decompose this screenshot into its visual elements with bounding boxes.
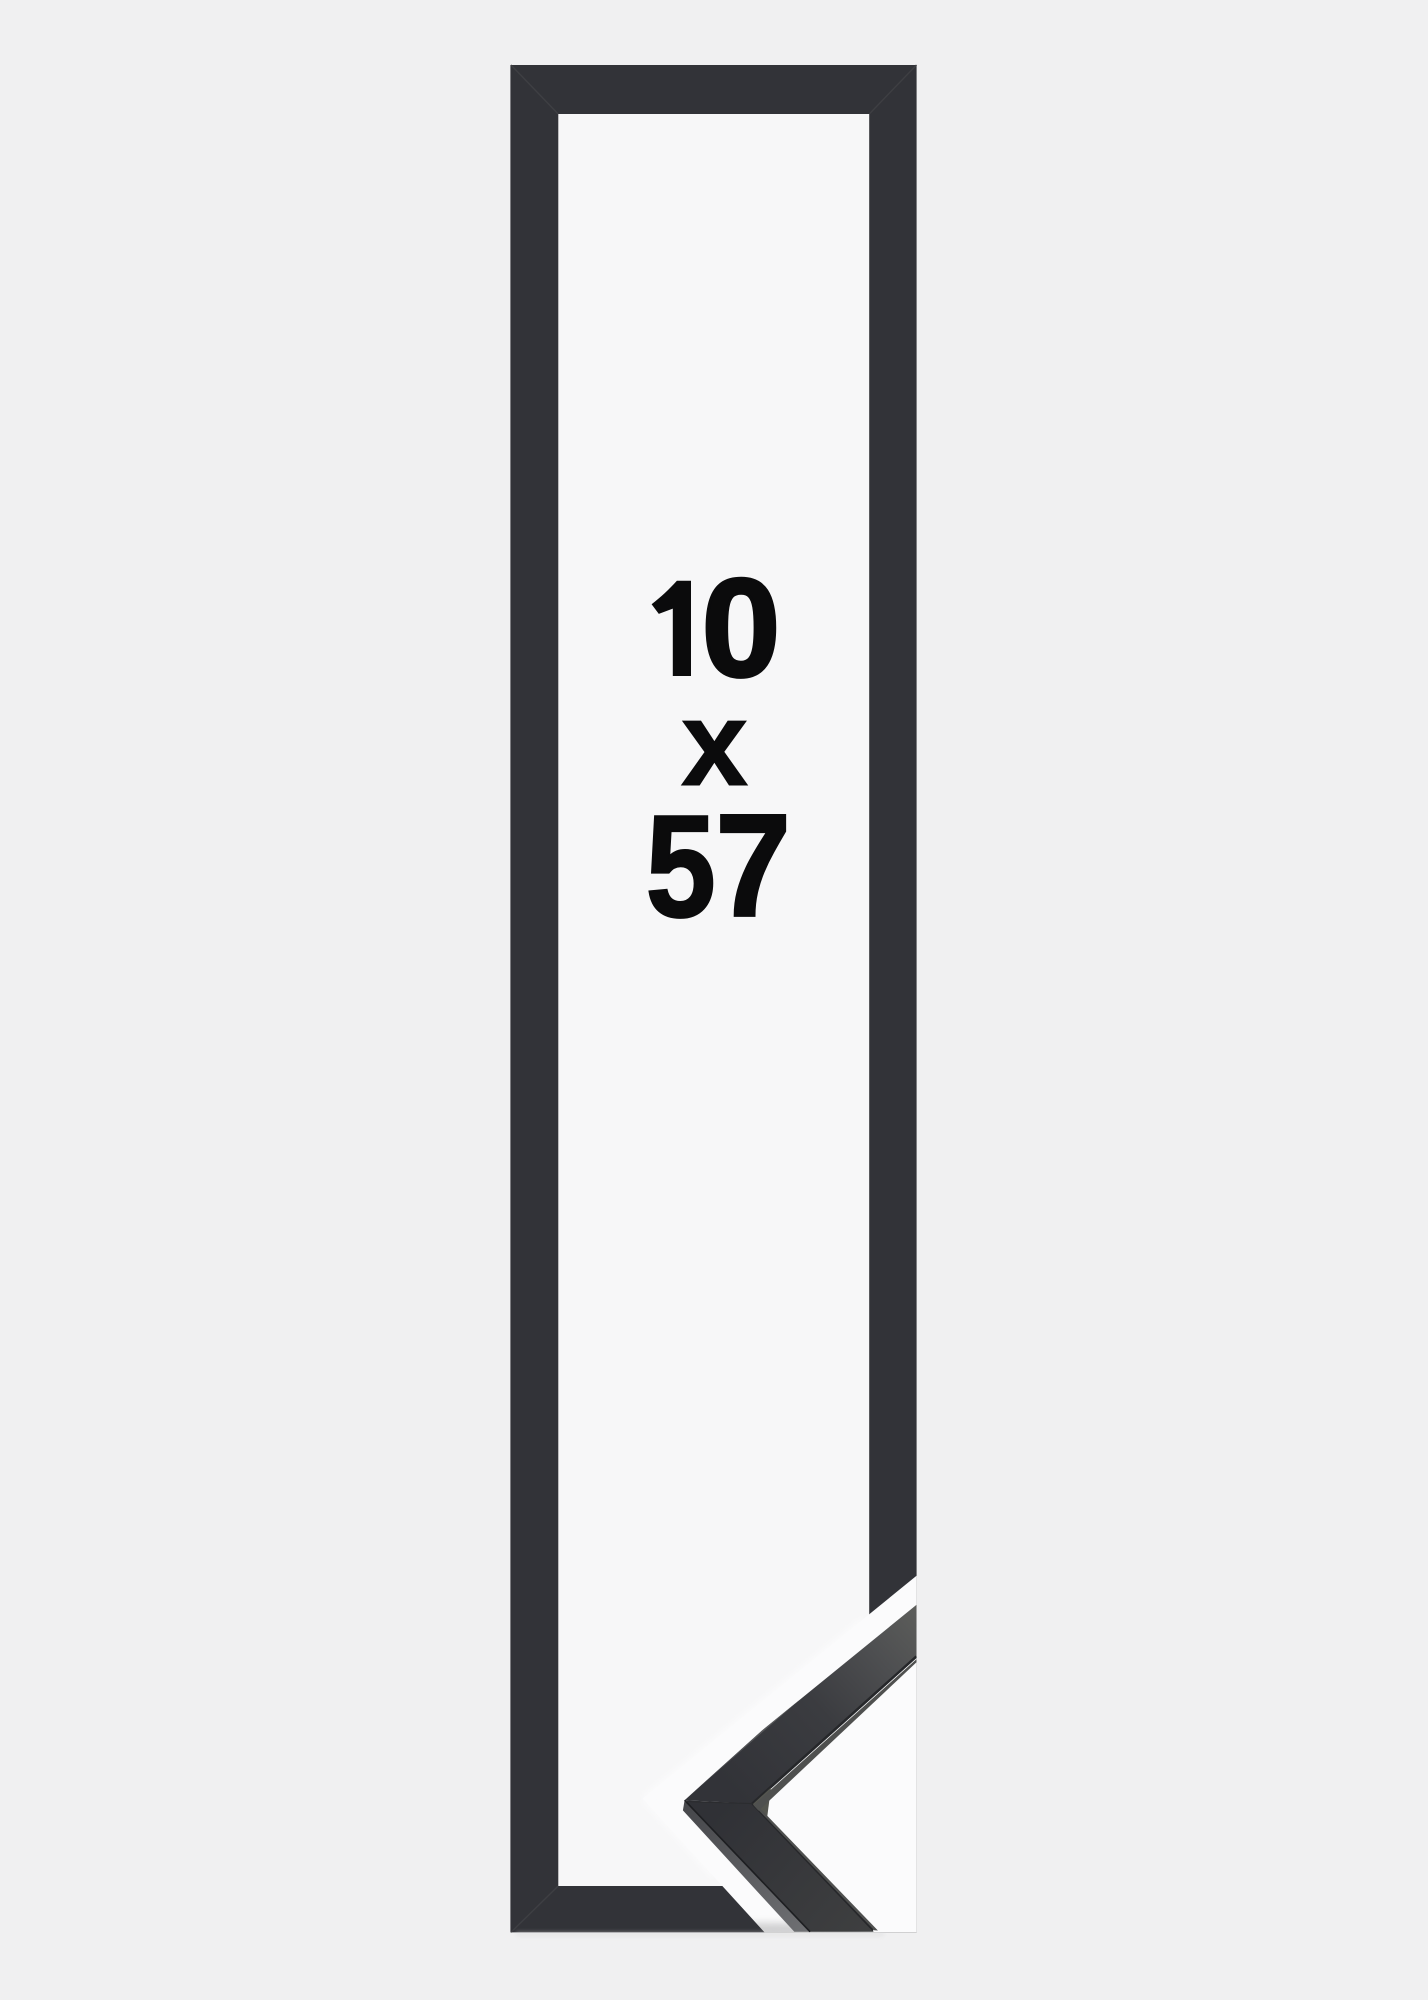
svg-text:7: 7	[716, 784, 791, 947]
svg-text:5: 5	[645, 784, 715, 947]
